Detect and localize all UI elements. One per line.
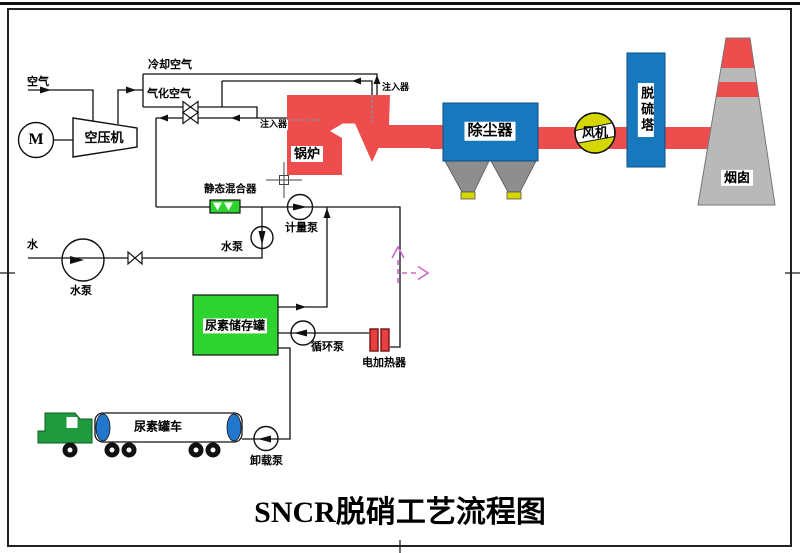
urea-storage-tank-label: 尿素储存罐 xyxy=(203,318,267,333)
valve-injection-line xyxy=(183,113,198,124)
gasification-air-label: 气化空气 xyxy=(146,88,192,100)
valve-gasification-air xyxy=(183,102,198,113)
metering-pump-label: 计量泵 xyxy=(284,222,319,234)
hopper-outlet-left xyxy=(461,192,475,199)
valves xyxy=(128,102,198,265)
water-label: 水 xyxy=(26,239,39,251)
urea-truck-label: 尿素罐车 xyxy=(133,420,183,433)
diagram-title: SNCR脱硝工艺流程图 xyxy=(254,487,546,531)
compressor-label: 空压机 xyxy=(83,131,124,145)
truck-wheels xyxy=(63,443,221,458)
injector-top-label: 注入器 xyxy=(381,83,410,93)
dust-hopper-right xyxy=(491,161,536,192)
fan-label: 风机 xyxy=(581,126,609,140)
cooling-air-label: 冷却空气 xyxy=(147,59,193,71)
truck-window xyxy=(67,417,78,428)
dust-collector-label: 除尘器 xyxy=(464,122,515,141)
unloading-pump-label: 卸载泵 xyxy=(249,455,284,467)
valve-water-line xyxy=(128,252,142,264)
dust-hopper-left xyxy=(445,161,489,192)
hopper-outlet-right xyxy=(507,192,521,199)
sncr-process-flow-diagram: 空气 冷却空气 气化空气 空压机 M 注入器 注入器 锅炉 除尘器 风机 脱硫塔… xyxy=(0,0,800,553)
static-mixer-label: 静态混合器 xyxy=(203,184,258,196)
boiler-label: 锅炉 xyxy=(291,146,323,162)
boiler-shape xyxy=(287,95,448,175)
injector-side-label: 注入器 xyxy=(259,120,288,130)
magenta-cursor-arrows xyxy=(392,247,428,283)
chimney-label: 烟囱 xyxy=(721,170,753,186)
booster-water-pump-label: 水泵 xyxy=(220,241,244,253)
air-label: 空气 xyxy=(26,76,50,88)
water-pump-label: 水泵 xyxy=(69,285,93,297)
tank-cap-left xyxy=(96,414,110,441)
desulfurization-tower-label: 脱硫塔 xyxy=(638,83,654,137)
static-mixer xyxy=(210,200,240,213)
truck-cab xyxy=(38,413,92,443)
tank-cap-right xyxy=(227,414,241,441)
electric-heater-label: 电加热器 xyxy=(361,357,407,369)
circulation-pump-label: 循环泵 xyxy=(310,341,345,353)
window-top-edge xyxy=(0,2,800,5)
motor-label: M xyxy=(27,131,44,149)
electric-heater-shape xyxy=(370,329,389,351)
